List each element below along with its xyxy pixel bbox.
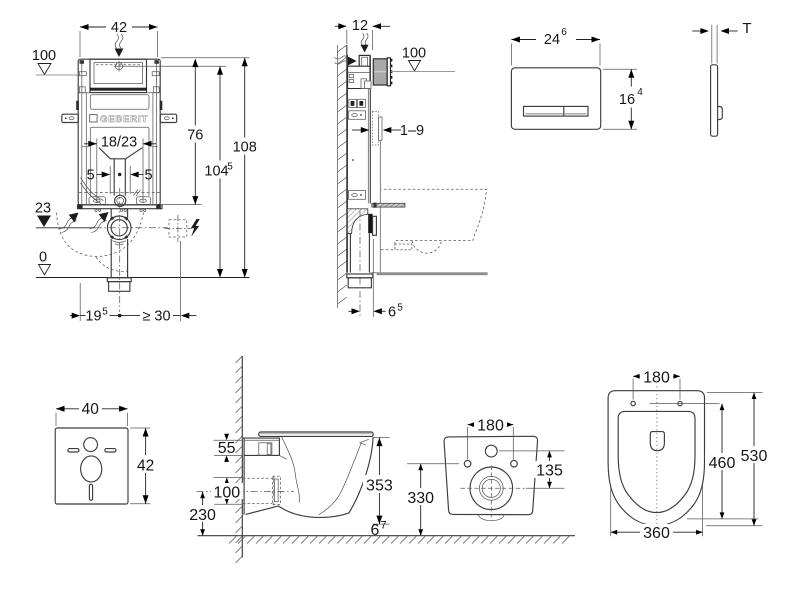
svg-text:5: 5 bbox=[397, 302, 403, 313]
svg-text:180: 180 bbox=[643, 369, 670, 386]
svg-text:230: 230 bbox=[189, 507, 216, 524]
svg-text:6: 6 bbox=[371, 522, 380, 539]
svg-text:6: 6 bbox=[388, 304, 396, 320]
svg-text:104: 104 bbox=[204, 164, 228, 180]
svg-text:135: 135 bbox=[536, 463, 563, 480]
svg-text:460: 460 bbox=[709, 455, 736, 472]
svg-text:530: 530 bbox=[741, 448, 768, 465]
svg-text:100: 100 bbox=[32, 48, 56, 64]
svg-text:4: 4 bbox=[637, 87, 643, 98]
svg-text:100: 100 bbox=[402, 46, 426, 62]
svg-text:T: T bbox=[742, 20, 751, 37]
svg-text:16: 16 bbox=[619, 92, 635, 108]
svg-text:42: 42 bbox=[137, 457, 154, 474]
svg-text:1–9: 1–9 bbox=[400, 123, 424, 139]
svg-text:12: 12 bbox=[352, 18, 368, 34]
svg-text:5: 5 bbox=[87, 168, 95, 184]
svg-text:≥ 30: ≥ 30 bbox=[142, 309, 170, 325]
svg-text:55: 55 bbox=[218, 440, 236, 457]
svg-text:5: 5 bbox=[227, 162, 233, 173]
svg-text:19: 19 bbox=[85, 309, 101, 325]
svg-text:40: 40 bbox=[82, 401, 100, 418]
svg-text:0: 0 bbox=[39, 250, 47, 266]
svg-text:360: 360 bbox=[643, 525, 670, 542]
svg-text:5: 5 bbox=[102, 307, 108, 318]
svg-text:18/23: 18/23 bbox=[101, 134, 137, 150]
svg-text:5: 5 bbox=[144, 168, 152, 184]
svg-text:42: 42 bbox=[111, 20, 127, 36]
svg-text:76: 76 bbox=[187, 128, 203, 144]
svg-text:23: 23 bbox=[35, 201, 51, 217]
svg-text:6: 6 bbox=[561, 27, 567, 38]
svg-text:100: 100 bbox=[213, 484, 240, 501]
svg-text:353: 353 bbox=[366, 477, 393, 494]
svg-text:180: 180 bbox=[477, 418, 504, 435]
svg-text:24: 24 bbox=[544, 32, 560, 48]
svg-text:7: 7 bbox=[380, 520, 386, 532]
svg-text:330: 330 bbox=[407, 490, 434, 507]
svg-text:GEBERIT: GEBERIT bbox=[100, 114, 148, 125]
svg-text:108: 108 bbox=[233, 140, 257, 156]
